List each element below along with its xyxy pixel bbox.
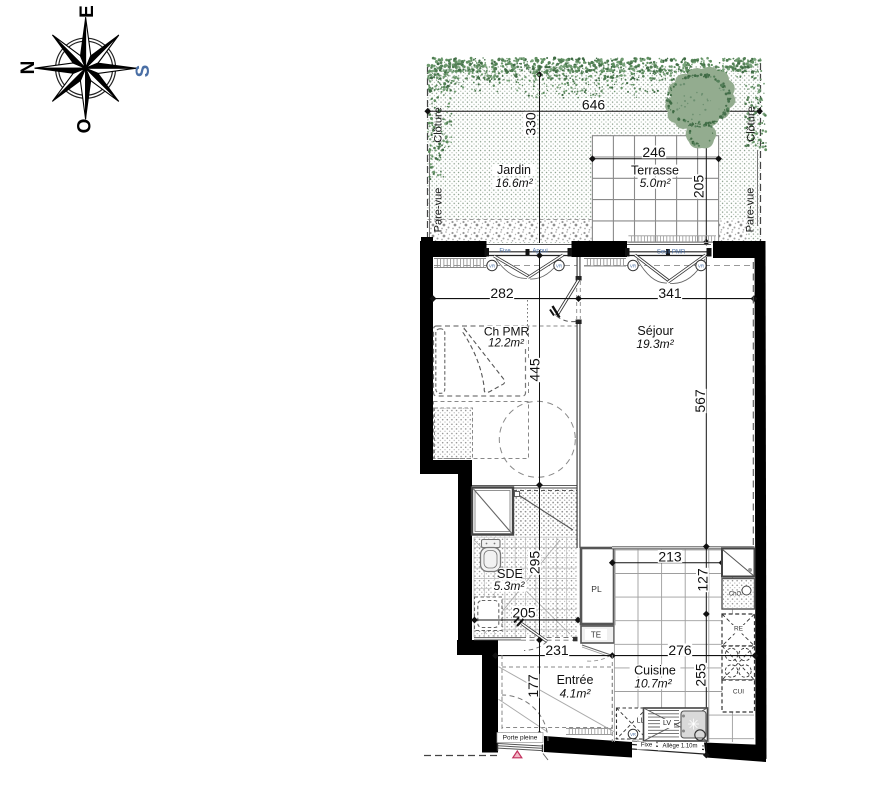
svg-text:Clôture: Clôture	[746, 106, 758, 141]
svg-text:E: E	[77, 5, 98, 18]
svg-text:Jardin: Jardin	[497, 163, 531, 177]
svg-text:Entrée: Entrée	[557, 673, 594, 687]
svg-text:10.7m²: 10.7m²	[634, 677, 672, 691]
svg-text:Seuil PMR: Seuil PMR	[657, 250, 686, 256]
svg-text:TE: TE	[591, 631, 601, 640]
svg-text:Porte pleine: Porte pleine	[503, 735, 538, 742]
svg-text:VR: VR	[630, 732, 636, 737]
svg-text:VR: VR	[698, 264, 705, 269]
svg-text:205: 205	[691, 175, 707, 199]
svg-text:205: 205	[512, 605, 536, 621]
svg-text:S: S	[133, 65, 154, 78]
svg-text:282: 282	[490, 285, 514, 301]
svg-text:Séjour: Séjour	[637, 324, 673, 338]
svg-text:Pare-vue: Pare-vue	[433, 188, 445, 233]
svg-text:276: 276	[668, 642, 692, 658]
svg-text:Fixe: Fixe	[499, 249, 511, 255]
svg-text:N: N	[18, 61, 39, 75]
svg-text:ChO: ChO	[729, 592, 742, 598]
svg-text:Ch PMR: Ch PMR	[484, 325, 530, 339]
svg-text:VR: VR	[630, 264, 637, 269]
svg-text:4.1m²: 4.1m²	[560, 687, 592, 701]
svg-text:RE: RE	[734, 626, 744, 633]
svg-text:295: 295	[527, 551, 543, 575]
svg-text:Clôture: Clôture	[433, 107, 445, 142]
svg-text:Cuisine: Cuisine	[634, 664, 676, 678]
svg-text:5.0m²: 5.0m²	[640, 176, 672, 190]
svg-text:VR: VR	[556, 264, 563, 269]
svg-text:Pare-vue: Pare-vue	[745, 188, 757, 233]
svg-text:445: 445	[527, 358, 543, 382]
svg-text:330: 330	[523, 112, 539, 136]
svg-text:213: 213	[658, 549, 682, 565]
svg-text:567: 567	[692, 389, 708, 413]
svg-text:341: 341	[658, 285, 682, 301]
svg-text:255: 255	[693, 663, 709, 687]
svg-text:PL: PL	[591, 584, 602, 594]
svg-text:16.6m²: 16.6m²	[495, 176, 533, 190]
svg-text:CUI: CUI	[733, 689, 744, 696]
svg-text:177: 177	[525, 674, 541, 698]
svg-text:VR: VR	[489, 264, 496, 269]
svg-text:✳: ✳	[687, 717, 700, 734]
svg-text:246: 246	[642, 144, 666, 160]
svg-text:231: 231	[545, 642, 569, 658]
svg-text:127: 127	[695, 568, 711, 592]
svg-text:Allège 1.10m: Allège 1.10m	[662, 744, 697, 750]
svg-text:646: 646	[582, 97, 606, 113]
svg-text:LV: LV	[663, 720, 671, 727]
svg-text:12.2m²: 12.2m²	[488, 338, 525, 350]
svg-text:19.3m²: 19.3m²	[636, 337, 674, 351]
svg-text:Fixe: Fixe	[641, 743, 653, 749]
svg-text:O: O	[75, 119, 96, 134]
svg-text:5.3m²: 5.3m²	[494, 579, 526, 593]
